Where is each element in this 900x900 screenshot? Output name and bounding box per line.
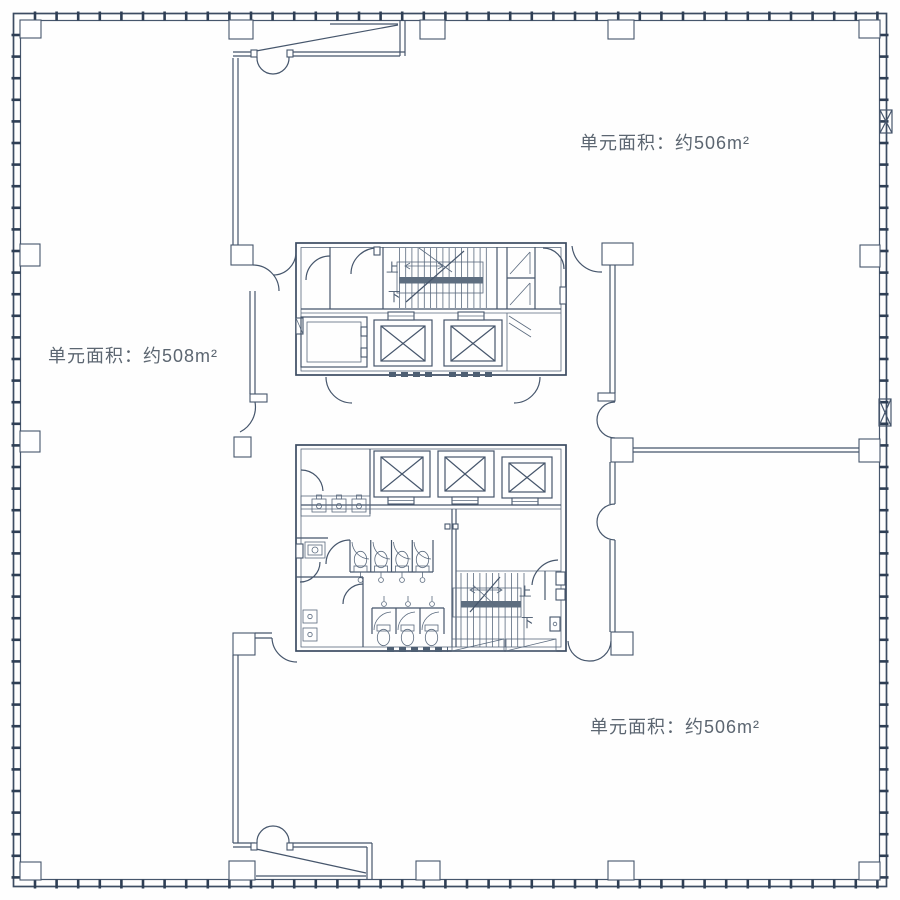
door-arc (343, 584, 363, 604)
upper-core: 上 下 (273, 243, 566, 403)
toilet (425, 625, 438, 646)
toilet-stalls-upper (350, 540, 433, 582)
stair-down-label: 下 (521, 616, 534, 630)
upper-core-right-rooms (507, 247, 566, 309)
floor-plan-canvas: 上 下 (0, 0, 900, 900)
upper-core-right-lower-room (507, 313, 531, 371)
door-arc (326, 377, 352, 403)
door-arc (300, 562, 320, 582)
partition-right-upper (572, 246, 615, 438)
perimeter-columns (20, 20, 880, 880)
door-arc (240, 402, 255, 432)
door-arc (306, 256, 330, 280)
stall-door-arc (374, 612, 391, 630)
double-door-arc (589, 641, 611, 661)
bottom-mechanical-room (233, 655, 372, 880)
partition-right-lower (568, 462, 615, 661)
washroom-walls (296, 538, 350, 582)
stair-landing (399, 277, 483, 284)
door-arc (272, 638, 297, 662)
double-door-arc (273, 57, 289, 74)
unit-area-label-right-top: 单元面积：约506m² (580, 133, 750, 153)
double-door-arc (257, 57, 273, 74)
upper-core-left-rooms (273, 247, 380, 334)
outer-curtain-wall (14, 14, 887, 887)
partition-left-lower (255, 633, 297, 662)
double-door-arc (597, 420, 615, 438)
toilet (377, 625, 390, 646)
door-arc (326, 540, 350, 564)
door-arc (253, 265, 279, 291)
partition-left-upper (240, 265, 279, 432)
double-door-arc (597, 522, 615, 540)
elevator-shaft (502, 457, 552, 505)
lower-stair: 上 下 (453, 560, 565, 647)
toilet-stalls-lower (372, 596, 444, 646)
double-door-arc (257, 826, 273, 843)
toilet (375, 551, 388, 572)
stall-door-arc (398, 612, 415, 630)
toilet (354, 551, 367, 572)
stair-treads (461, 573, 524, 647)
unit-area-label-left: 单元面积：约508m² (48, 346, 218, 366)
stair-up-label: 上 (519, 585, 532, 599)
toilet (396, 551, 409, 572)
double-door-arc (273, 826, 289, 843)
door-arc (273, 252, 296, 275)
lower-core-lobby-wall (445, 509, 458, 647)
facade-louver-vents (879, 110, 892, 426)
floor-plan-drawing: 上 下 (0, 0, 900, 900)
double-door-arc (597, 504, 615, 522)
door-arc (351, 248, 377, 274)
double-door-arc (597, 402, 615, 420)
lower-core: 上 下 (296, 445, 566, 651)
toilet (416, 551, 429, 572)
stair-down-label: 下 (388, 290, 401, 304)
stall-door-arc (422, 612, 439, 630)
door-arc (301, 470, 323, 491)
stall-dividers (372, 608, 444, 634)
urinal-room (296, 577, 363, 647)
upper-stair: 上 下 (383, 247, 497, 309)
top-mechanical-room (233, 20, 405, 245)
door-arc (572, 246, 602, 272)
double-door-arc (568, 641, 589, 661)
upper-core-service-room (301, 317, 367, 367)
door-arc (514, 377, 540, 403)
toilet (401, 625, 414, 646)
elevator-shaft (374, 451, 430, 504)
elevator-shaft (438, 451, 494, 504)
elevator-shaft (374, 312, 432, 366)
corridor-wall-right (633, 448, 859, 452)
unit-area-label-right-bottom: 单元面积：约506m² (590, 717, 760, 737)
stair-up-label: 上 (386, 261, 399, 275)
elevator-shaft (444, 312, 502, 366)
corner-columns (20, 20, 880, 880)
